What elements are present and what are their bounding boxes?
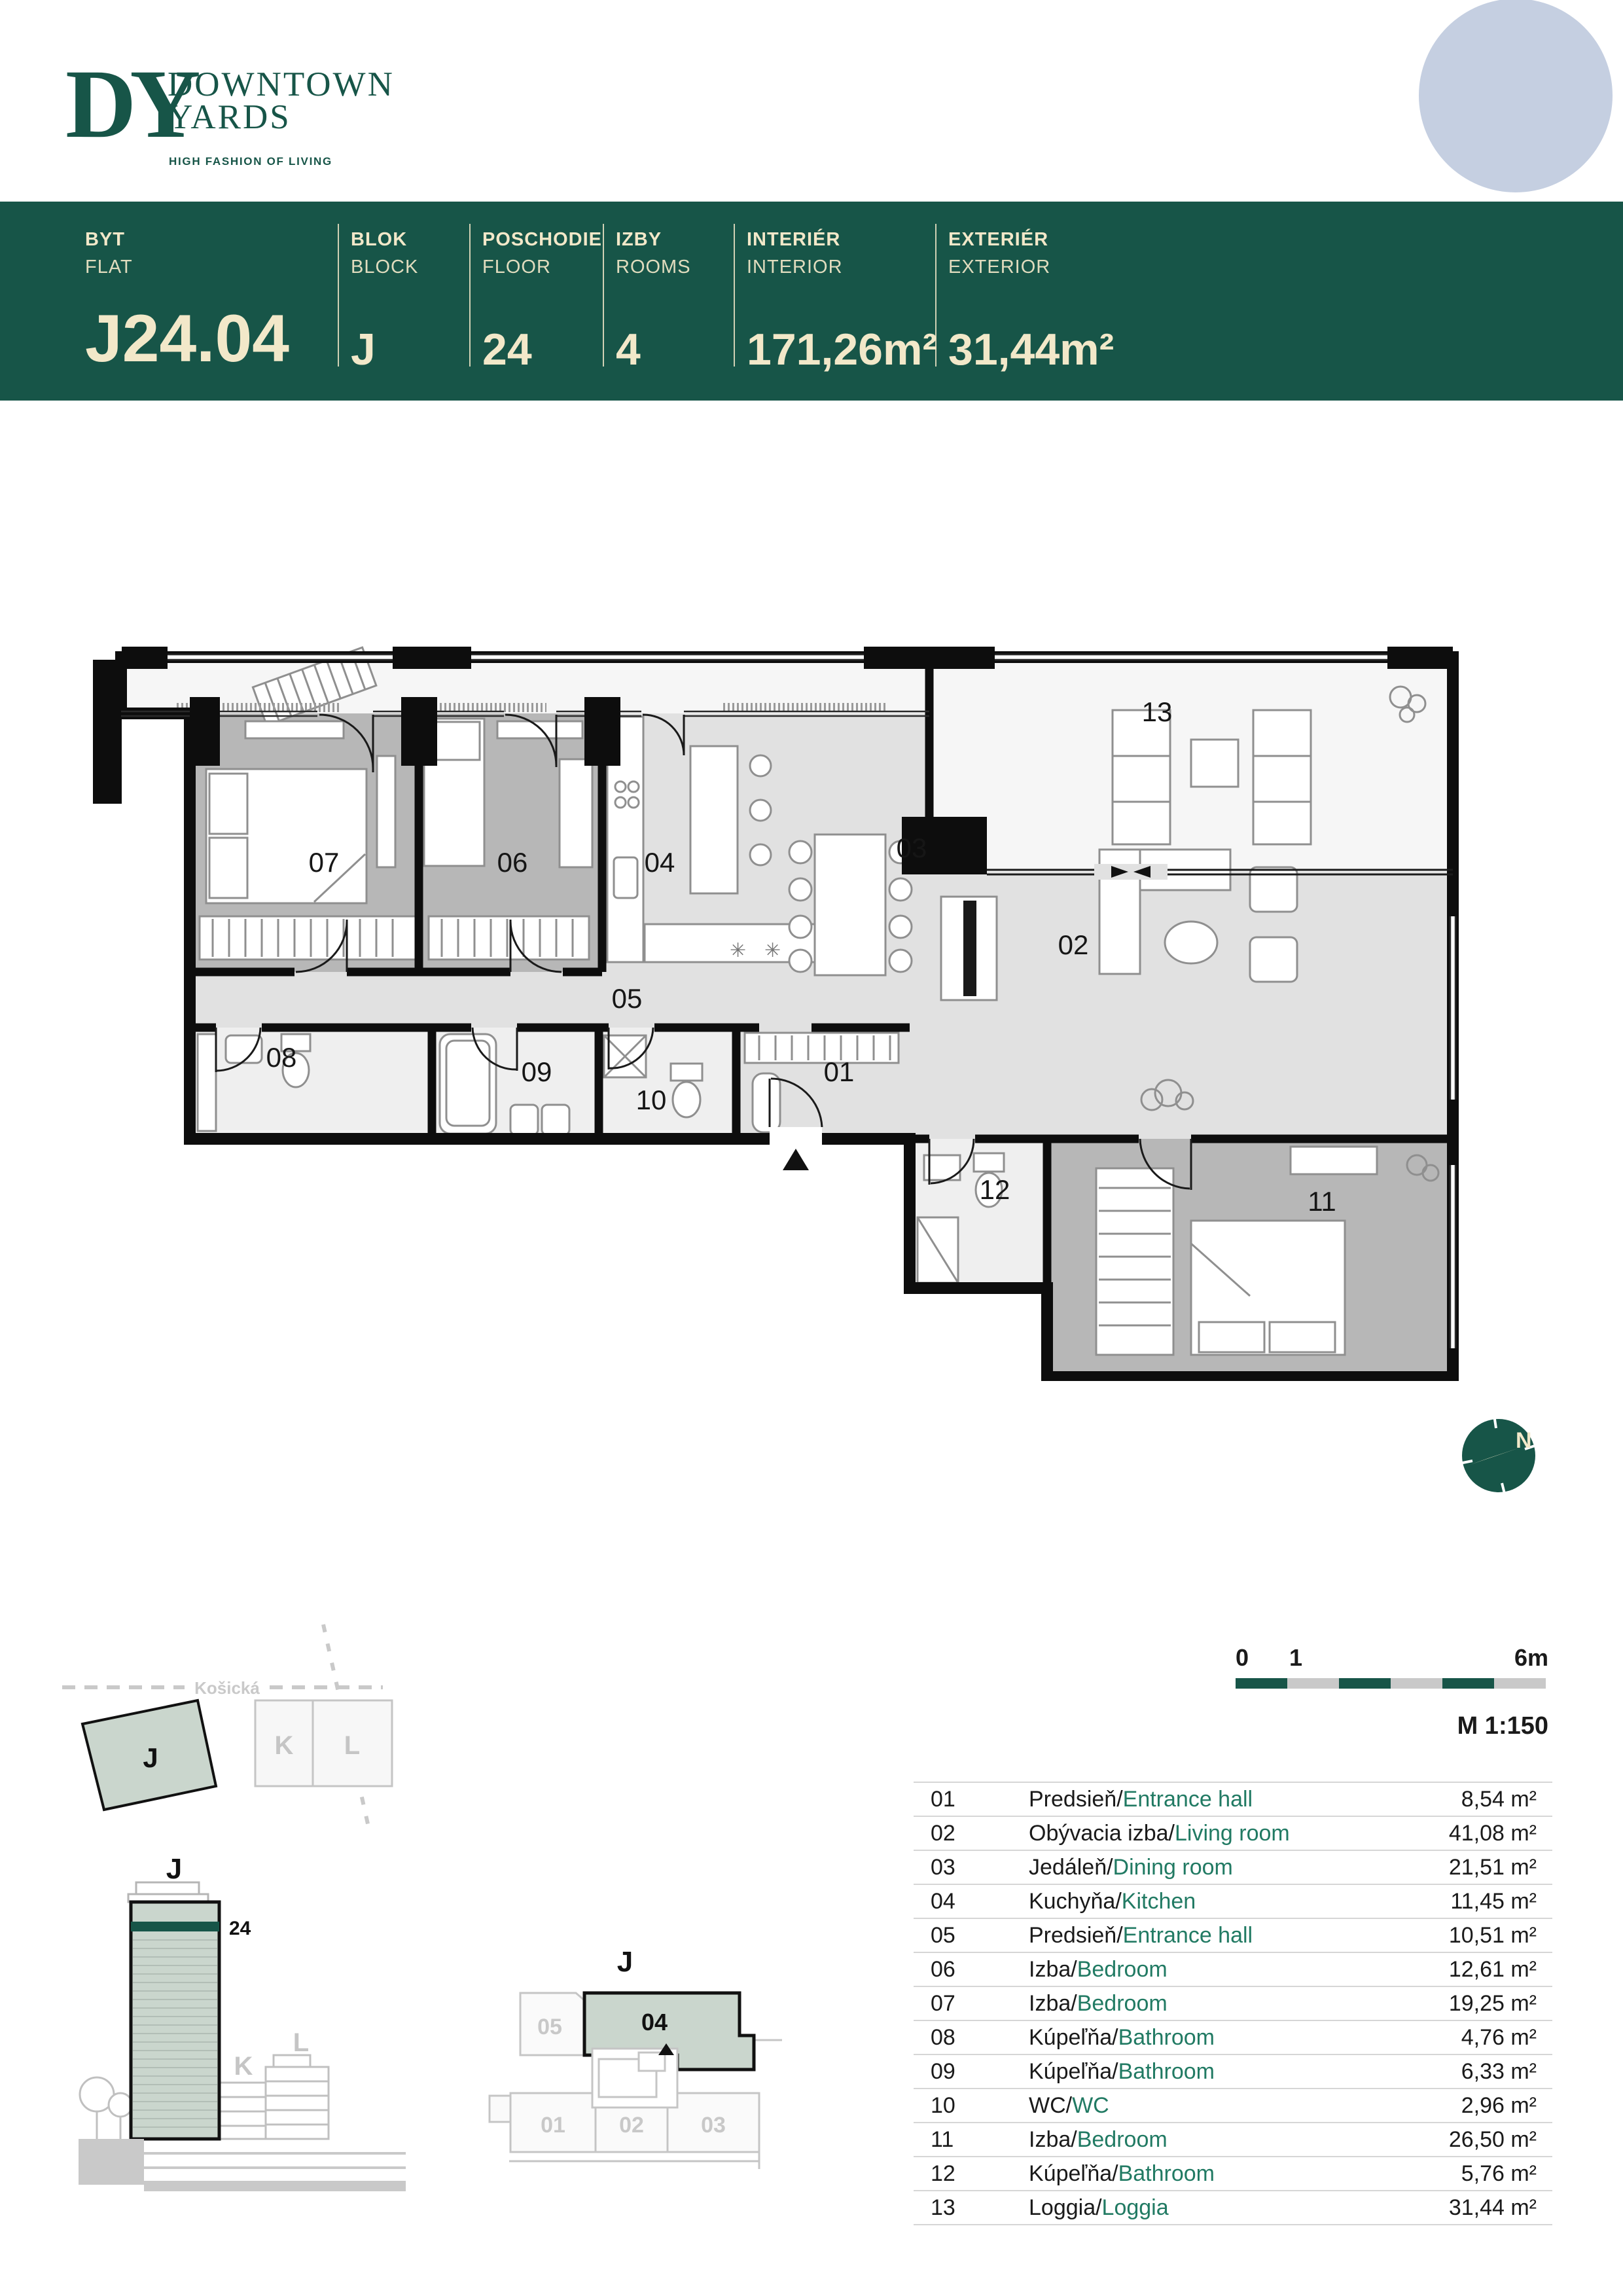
room-label-12: 12	[980, 1174, 1010, 1205]
table-row: 05Predsieň/Entrance hall10,51 m²	[914, 1918, 1552, 1952]
room-label-07: 07	[309, 847, 340, 878]
building-elevation: J K L 24	[39, 1859, 406, 2225]
room-name: Izba/Bedroom	[1029, 1957, 1449, 1982]
elevation-floor-number: 24	[229, 1918, 251, 1939]
room-label-08: 08	[266, 1042, 297, 1073]
room-area: 21,51 m²	[1449, 1855, 1552, 1880]
flat-summary-banner: BYT FLAT J24.04 BLOK BLOCK J POSCHODIE F…	[0, 202, 1623, 401]
label-byt: BYT	[85, 229, 125, 251]
room-area: 31,44 m²	[1449, 2195, 1552, 2221]
table-row: 12Kúpeľňa/Bathroom5,76 m²	[914, 2156, 1552, 2190]
label-flat: FLAT	[85, 257, 133, 278]
banner-separator	[734, 224, 735, 367]
room-number: 08	[914, 2025, 1029, 2051]
room-area: 10,51 m²	[1449, 1923, 1552, 1948]
rooms-value: 4	[616, 327, 641, 372]
entrance-marker	[783, 1149, 809, 1170]
room-area: 4,76 m²	[1461, 2025, 1552, 2051]
room-number: 06	[914, 1957, 1029, 1982]
scale-ratio: M 1:150	[1457, 1712, 1548, 1740]
banner-separator	[935, 224, 936, 367]
exterior-area-value: 31,44m²	[948, 327, 1114, 372]
room-number: 03	[914, 1855, 1029, 1880]
room-label-04: 04	[645, 847, 675, 878]
label-interier: INTERIÉR	[747, 229, 840, 251]
scale-1: 1	[1289, 1644, 1302, 1672]
block-value: J	[351, 327, 376, 372]
room-label-02: 02	[1058, 929, 1089, 960]
room-label-06: 06	[497, 847, 528, 878]
label-interior: INTERIOR	[747, 257, 843, 278]
room-number: 09	[914, 2059, 1029, 2085]
logo-tagline: HIGH FASHION OF LIVING	[169, 155, 332, 168]
floor-key-plan: J 05 04 01 02 03	[458, 1931, 785, 2225]
label-exterior: EXTERIOR	[948, 257, 1050, 278]
site-block-k: K	[275, 1731, 294, 1760]
room-name: Predsieň/Entrance hall	[1029, 1787, 1461, 1812]
elevation-block-label: J	[166, 1859, 182, 1885]
highlighted-floor-band	[131, 1922, 219, 1931]
room-number: 12	[914, 2161, 1029, 2187]
floor-value: 24	[482, 327, 532, 372]
logo-name: DOWNTOWN YARDS	[168, 68, 395, 134]
street-label: Košická	[194, 1678, 260, 1698]
keyplan-unit-01: 01	[541, 2113, 565, 2138]
flat-number: J24.04	[85, 305, 289, 372]
scale-0: 0	[1236, 1644, 1249, 1672]
label-exterier: EXTERIÉR	[948, 229, 1048, 251]
table-row: 03Jedáleň/Dining room21,51 m²	[914, 1850, 1552, 1884]
room-name: Loggia/Loggia	[1029, 2195, 1449, 2221]
room-name: Obývacia izba/Living room	[1029, 1821, 1449, 1846]
table-row: 09Kúpeľňa/Bathroom6,33 m²	[914, 2054, 1552, 2088]
table-row: 10WC/WC2,96 m²	[914, 2088, 1552, 2122]
room-name: Kuchyňa/Kitchen	[1029, 1889, 1450, 1914]
room-label-05: 05	[612, 983, 643, 1014]
label-rooms: ROOMS	[616, 257, 691, 278]
room-number: 07	[914, 1991, 1029, 2017]
room-area: 11,45 m²	[1450, 1889, 1552, 1914]
room-area: 12,61 m²	[1449, 1957, 1552, 1982]
label-block: BLOCK	[351, 257, 418, 278]
room-area: 6,33 m²	[1461, 2059, 1552, 2085]
logo-name-line2: YARDS	[168, 101, 395, 134]
label-poschodie: POSCHODIE	[482, 229, 602, 251]
decorative-circle	[1419, 0, 1613, 192]
elevation-k-label: K	[234, 2052, 253, 2081]
table-row: 01Predsieň/Entrance hall8,54 m²	[914, 1782, 1552, 1816]
room-name: Izba/Bedroom	[1029, 2127, 1449, 2153]
interior-area-value: 171,26m²	[747, 327, 937, 372]
compass: N	[1453, 1411, 1547, 1505]
keyplan-unit-03: 03	[701, 2113, 726, 2138]
room-name: Kúpeľňa/Bathroom	[1029, 2025, 1461, 2051]
room-label-01: 01	[824, 1056, 855, 1087]
room-label-13: 13	[1142, 696, 1173, 727]
room-area: 2,96 m²	[1461, 2093, 1552, 2119]
banner-separator	[338, 224, 339, 367]
logo-name-line1: DOWNTOWN	[168, 68, 395, 101]
room-number: 05	[914, 1923, 1029, 1948]
room-name: WC/WC	[1029, 2093, 1461, 2119]
label-izby: IZBY	[616, 229, 662, 251]
room-area: 41,08 m²	[1449, 1821, 1552, 1846]
table-row: 08Kúpeľňa/Bathroom4,76 m²	[914, 2020, 1552, 2054]
scale-6m: 6m	[1514, 1644, 1548, 1672]
room-name: Predsieň/Entrance hall	[1029, 1923, 1449, 1948]
keyplan-unit-02: 02	[619, 2113, 644, 2138]
room-area: 26,50 m²	[1449, 2127, 1552, 2153]
room-name: Kúpeľňa/Bathroom	[1029, 2059, 1461, 2085]
appliance-mark: ✳	[764, 940, 781, 961]
brochure-page: DY DOWNTOWN YARDS HIGH FASHION OF LIVING…	[0, 0, 1623, 2296]
entrance-door-gap	[770, 1127, 822, 1151]
room-number: 11	[914, 2127, 1029, 2153]
appliance-mark: ✳	[730, 940, 746, 961]
keyplan-unit-04: 04	[641, 2009, 668, 2036]
table-row: 04Kuchyňa/Kitchen11,45 m²	[914, 1884, 1552, 1918]
scale-bar: 0 1 6m M 1:150	[1236, 1644, 1550, 1755]
table-row: 06Izba/Bedroom12,61 m²	[914, 1952, 1552, 1986]
table-row: 07Izba/Bedroom19,25 m²	[914, 1986, 1552, 2020]
room-number: 01	[914, 1787, 1029, 1812]
table-row: 11Izba/Bedroom26,50 m²	[914, 2122, 1552, 2156]
site-block-l: L	[344, 1731, 360, 1760]
room-area: 8,54 m²	[1461, 1787, 1552, 1812]
room-area: 5,76 m²	[1461, 2161, 1552, 2187]
keyplan-block-label: J	[617, 1946, 633, 1978]
room-number: 13	[914, 2195, 1029, 2221]
room-label-11: 11	[1308, 1186, 1336, 1217]
compass-north-label: N	[1516, 1428, 1532, 1453]
room-label-10: 10	[636, 1085, 667, 1115]
site-block-j: J	[143, 1742, 158, 1773]
room-number: 10	[914, 2093, 1029, 2119]
room-name: Jedáleň/Dining room	[1029, 1855, 1449, 1880]
room-number: 04	[914, 1889, 1029, 1914]
room-label-09: 09	[522, 1056, 552, 1087]
site-plan: Košická J K L	[39, 1604, 406, 1878]
floor-plan: ✳ ✳	[79, 641, 1459, 1381]
room-area-table: 01Predsieň/Entrance hall8,54 m²02Obývaci…	[914, 1782, 1552, 2225]
banner-separator	[603, 224, 604, 367]
room-name: Kúpeľňa/Bathroom	[1029, 2161, 1461, 2187]
label-blok: BLOK	[351, 229, 407, 251]
room-label-03: 03	[897, 833, 927, 863]
room-area: 19,25 m²	[1449, 1991, 1552, 2017]
label-floor: FLOOR	[482, 257, 551, 278]
elevation-l-label: L	[293, 2028, 309, 2057]
table-row: 02Obývacia izba/Living room41,08 m²	[914, 1816, 1552, 1850]
room-number: 02	[914, 1821, 1029, 1846]
room-name: Izba/Bedroom	[1029, 1991, 1449, 2017]
keyplan-unit-05: 05	[537, 2015, 562, 2039]
banner-separator	[469, 224, 471, 367]
table-row: 13Loggia/Loggia31,44 m²	[914, 2190, 1552, 2224]
scale-bar-segments	[1236, 1678, 1546, 1689]
